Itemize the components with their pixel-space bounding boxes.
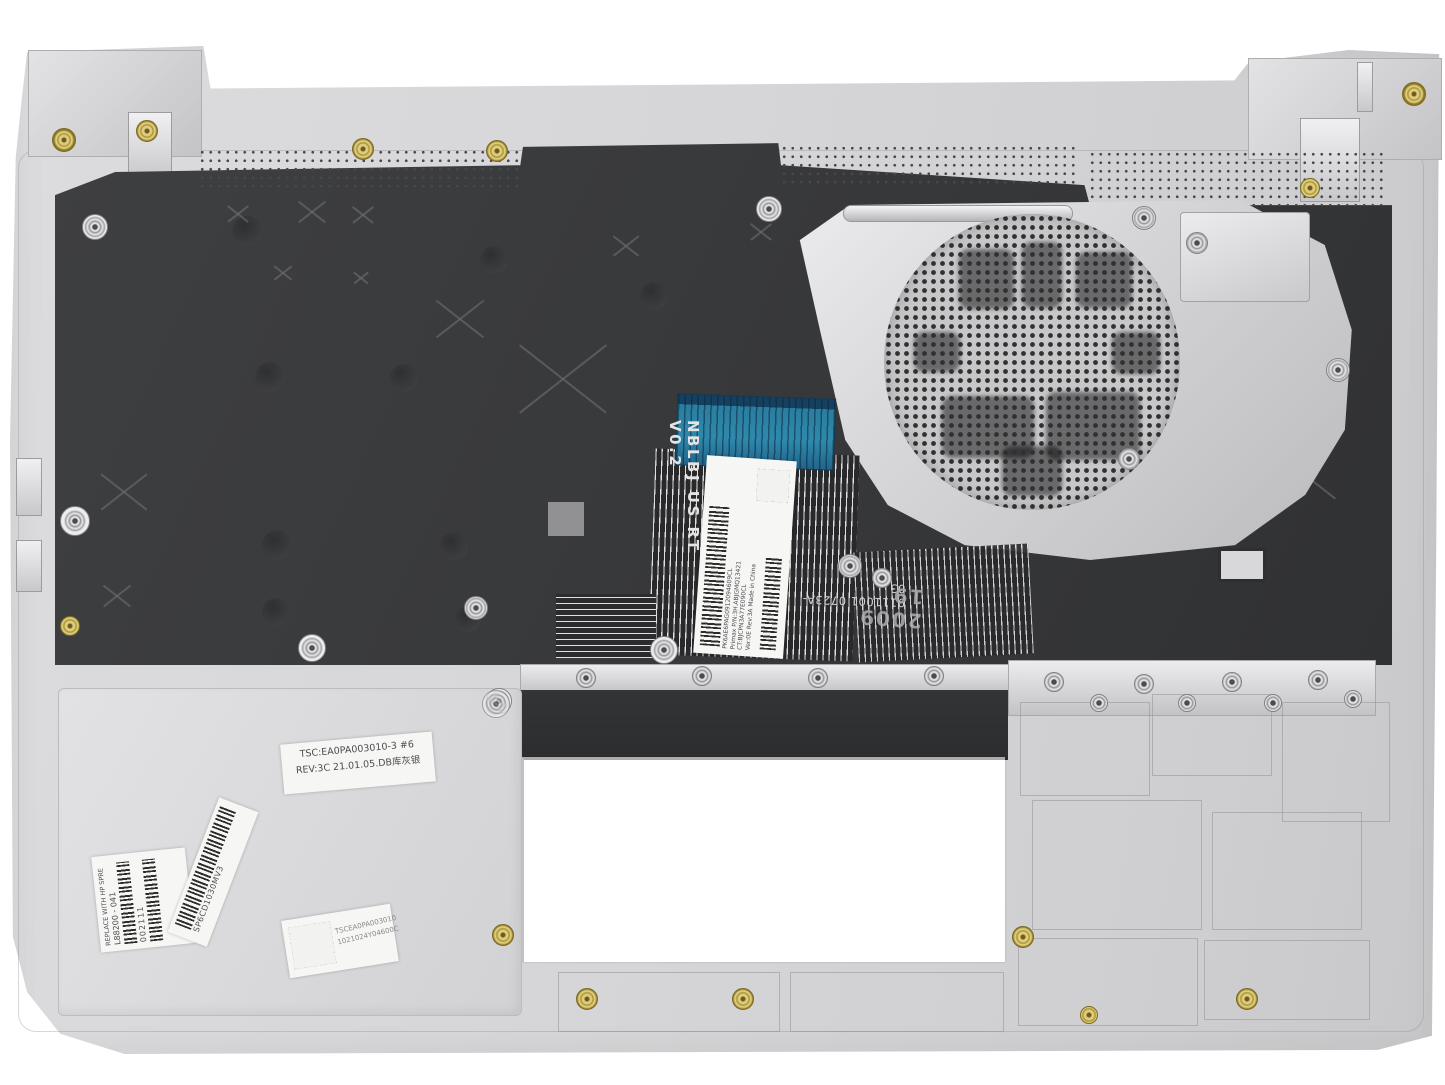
molded-rib (1018, 938, 1198, 1026)
side-wall-bracket (16, 458, 42, 516)
brass-standoff (60, 616, 80, 636)
screw (650, 636, 678, 664)
backplate-dimple (440, 532, 468, 560)
molded-rib (1032, 800, 1202, 930)
x-scratch-mark (508, 318, 618, 438)
screw (576, 668, 596, 688)
brass-standoff (1402, 82, 1426, 106)
keyboard-flex-cable (556, 594, 656, 658)
brass-standoff (1300, 178, 1320, 198)
screw (60, 506, 90, 536)
backplate-connector-window (1218, 548, 1266, 582)
screw (1186, 232, 1208, 254)
screw (1264, 694, 1282, 712)
screw (1308, 670, 1328, 690)
backplate-dimple (390, 364, 418, 392)
brass-standoff (1236, 988, 1258, 1010)
screw (838, 554, 862, 578)
screw (1044, 672, 1064, 692)
backplate-dimple (480, 246, 508, 274)
screw (1344, 690, 1362, 708)
product-photo-canvas: NBLBJ US RT V0.2 PK6AE6PAG0912094609CL P… (0, 0, 1445, 1085)
screw (1178, 694, 1196, 712)
touchpad-corner-ring (482, 690, 510, 718)
x-scratch-mark (95, 460, 153, 522)
backplate-center-tab (513, 690, 1008, 760)
screw (1118, 448, 1140, 470)
screw (692, 666, 712, 686)
x-scratch-mark (610, 230, 642, 260)
touchpad-cutout (522, 757, 1005, 962)
molded-rib (1020, 702, 1150, 796)
brass-standoff (352, 138, 374, 160)
x-scratch-mark (350, 202, 376, 226)
screw (808, 668, 828, 688)
brass-standoff (492, 924, 514, 946)
speaker-grille-center (780, 144, 1080, 186)
datamatrix-icon (288, 921, 336, 969)
screw (1326, 358, 1350, 382)
x-scratch-mark (272, 262, 294, 282)
brass-standoff (732, 988, 754, 1010)
backplate-dimple (255, 362, 285, 392)
x-scratch-mark (295, 196, 329, 226)
flex-label: PK6AE6PAG0912094609CL Primax P/N:3H.ABJG… (693, 455, 797, 659)
screw (1090, 694, 1108, 712)
screw (1134, 674, 1154, 694)
brass-standoff (136, 120, 158, 142)
x-scratch-mark (100, 578, 134, 612)
screw (924, 666, 944, 686)
brass-standoff (1012, 926, 1034, 948)
brass-standoff (52, 128, 76, 152)
flex-connector-marking: NBLBJ US RT V0.2 (680, 420, 702, 580)
side-wall-bracket (16, 540, 42, 592)
brass-standoff (1080, 1006, 1098, 1024)
molded-rib (1282, 702, 1390, 822)
screw (1222, 672, 1242, 692)
molded-rib (1152, 694, 1272, 776)
x-scratch-mark (430, 290, 490, 346)
hinge-post-right (1357, 62, 1373, 112)
backplate-dimple (262, 598, 290, 626)
molded-rib (790, 972, 1004, 1032)
screw (872, 568, 892, 588)
x-scratch-mark (225, 200, 251, 226)
screw (464, 596, 488, 620)
screw (82, 214, 108, 240)
molded-rib (1212, 812, 1362, 930)
backplate-dimple (262, 530, 292, 560)
fan-bracket-plate (1180, 212, 1310, 302)
screw (298, 634, 326, 662)
backplate-grey-patch (548, 502, 584, 536)
backplate-dimple (640, 282, 668, 310)
speaker-grille-right (1088, 150, 1388, 206)
screw (756, 196, 782, 222)
screw (1132, 206, 1156, 230)
x-scratch-mark (352, 268, 370, 286)
molded-rib (1204, 940, 1370, 1020)
brass-standoff (576, 988, 598, 1010)
brass-standoff (486, 140, 508, 162)
